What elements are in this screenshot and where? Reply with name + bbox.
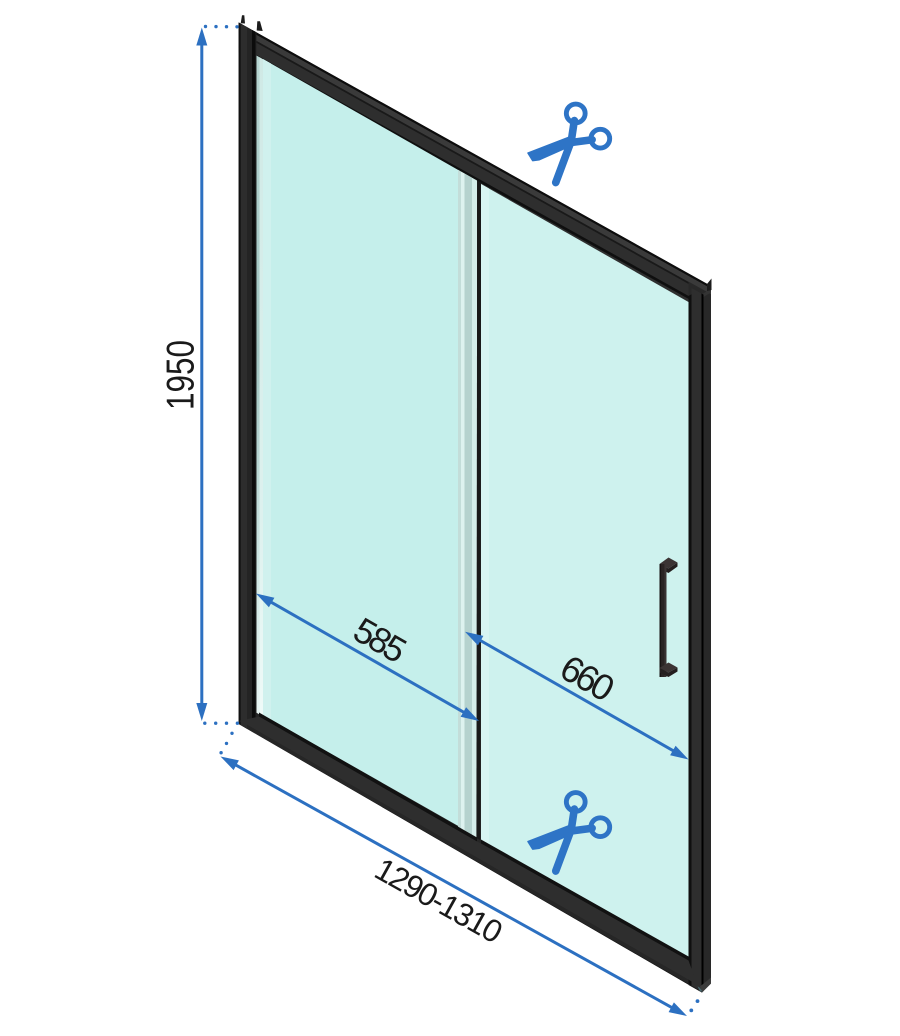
svg-text:1950: 1950 (160, 340, 203, 410)
